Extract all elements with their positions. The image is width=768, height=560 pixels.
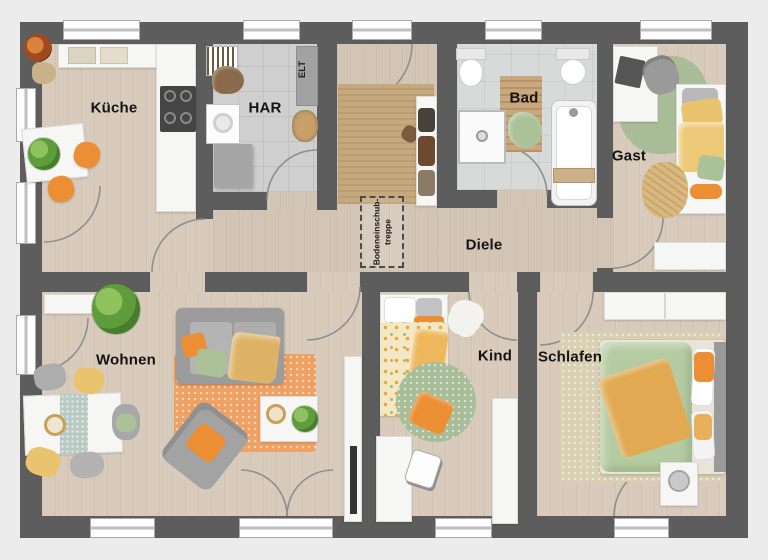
kind-pillow-gray <box>416 298 442 318</box>
tv <box>350 446 357 514</box>
stove-burner <box>180 90 192 102</box>
kind-pillow-white <box>384 297 416 323</box>
fruit-basket <box>24 34 52 62</box>
stove-burner <box>164 90 176 102</box>
toilet-bowl <box>459 59 483 87</box>
diele-label: Diele <box>466 237 503 254</box>
bathtub-faucet <box>569 108 578 117</box>
hanging-decor <box>32 62 56 84</box>
schlafen-pillow-yellow <box>694 414 712 440</box>
kind-wardrobe <box>492 398 518 524</box>
wohnen-terrace-right-leaf-arc <box>287 470 333 516</box>
attic-hatch-line1: Bodeneinschub- <box>371 199 382 266</box>
schlafen-pillow-orange <box>694 352 714 382</box>
bathtub-tray <box>553 168 595 183</box>
floor-plan: ELT Bodeneinschub- treppe <box>0 0 768 560</box>
flower-rug <box>450 300 482 334</box>
wohnen-left-door-arc <box>34 318 88 372</box>
plant-small <box>292 406 318 432</box>
deco-plate <box>44 414 66 436</box>
laundry-pile <box>212 66 244 94</box>
shower-drain <box>476 130 488 142</box>
har-label: HAR <box>248 100 281 117</box>
nightstand-lamp <box>668 470 690 492</box>
cutting-board <box>100 47 128 64</box>
laundry-basket <box>292 110 318 142</box>
plant-large <box>92 284 140 334</box>
bad-label: Bad <box>510 90 539 107</box>
bathtub-inner <box>556 106 592 200</box>
sofa-pillow-green <box>194 348 228 379</box>
stove-burner <box>180 112 192 124</box>
gast-sideboard <box>654 242 726 270</box>
attic-hatch-label: Bodeneinschub- treppe <box>371 199 392 266</box>
towel-green <box>508 112 542 148</box>
gast-cushion-green <box>696 154 725 181</box>
coat <box>418 170 435 196</box>
pouf <box>642 162 688 218</box>
schlafen-wardrobe <box>604 292 726 320</box>
kueche-south-door-arc <box>152 219 205 272</box>
washbasin-bowl <box>560 59 586 85</box>
attic-hatch-outline: Bodeneinschub- treppe <box>360 196 404 268</box>
wohnen-terrace-left-leaf-arc <box>241 470 287 516</box>
attic-hatch-line2: treppe <box>382 199 393 266</box>
schlafen-label: Schlafen <box>538 349 602 366</box>
coat <box>418 108 435 132</box>
sofa-blanket-yellow <box>227 331 280 384</box>
kind-label: Kind <box>478 348 512 365</box>
deco-bowl <box>266 404 286 424</box>
chair-cushion-green <box>116 414 136 432</box>
gast-label: Gast <box>612 148 646 165</box>
plant <box>28 138 60 170</box>
utility-table <box>214 144 252 188</box>
washer-door <box>213 113 233 133</box>
stove-burner <box>164 112 176 124</box>
elt-text: ELT <box>297 61 308 78</box>
wohnen-label: Wohnen <box>96 352 156 369</box>
cutting-board <box>68 47 96 64</box>
gast-cushion-orange <box>690 184 722 199</box>
elt-label: ELT <box>297 61 308 78</box>
coat <box>418 136 435 166</box>
har-door-arc <box>267 150 317 200</box>
schlafen-headboard <box>714 342 726 472</box>
wohnen-entrance-arc <box>307 287 360 340</box>
kueche-label: Küche <box>91 100 138 117</box>
